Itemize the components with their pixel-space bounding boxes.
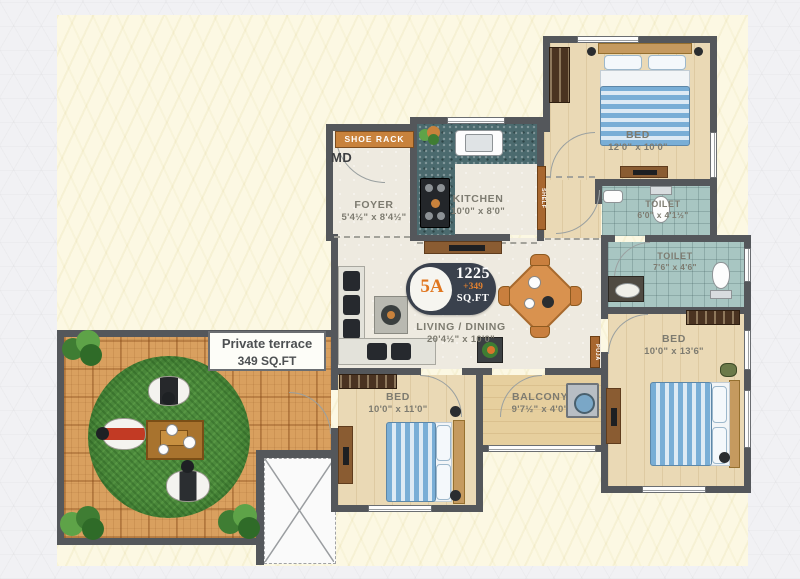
bed2-dresser bbox=[338, 426, 353, 484]
dining-chair-north bbox=[530, 254, 550, 266]
wall-foyer-left bbox=[326, 124, 333, 241]
unit-area-extra: +349 bbox=[452, 283, 494, 293]
kitchen-plant bbox=[419, 126, 441, 146]
bed2-wardrobe bbox=[339, 374, 397, 389]
void-duct-box bbox=[264, 458, 336, 564]
bed2-lamp-top bbox=[450, 406, 461, 417]
toilet2-label: TOILET 7'6" x 4'6" bbox=[632, 250, 718, 274]
living-label: LIVING / DINING 20'4½" x 10'0" bbox=[396, 320, 526, 347]
bed3-window-right-b bbox=[744, 390, 751, 448]
bed3-window-right-a bbox=[744, 330, 751, 370]
toilet1-dim: 6'0" x 4'1½" bbox=[622, 210, 704, 221]
wall-toilet1-right bbox=[710, 186, 717, 242]
bed2-name: BED bbox=[352, 390, 444, 404]
shoe-rack-label: SHOE RACK bbox=[344, 134, 404, 144]
toilet2-dim: 7'6" x 4'6" bbox=[632, 262, 718, 273]
living-name: LIVING / DINING bbox=[396, 320, 526, 334]
dining-chair-east bbox=[570, 286, 582, 306]
floorplan-canvas: Private terrace 349 SQ.FT bbox=[0, 0, 800, 579]
wall-bed2-left-a bbox=[331, 336, 338, 390]
sofa-vertical bbox=[338, 266, 365, 346]
terrace-bush-topleft bbox=[62, 330, 106, 368]
terrace-bush-bottomleft bbox=[60, 504, 108, 542]
wall-balcony-top-a bbox=[476, 368, 492, 375]
toilet1-wc-tank bbox=[650, 186, 672, 195]
bed1-pillow-left bbox=[604, 55, 642, 70]
bed1-name: BED bbox=[596, 128, 680, 142]
wall-living-left bbox=[331, 238, 338, 336]
terrace-person-top bbox=[146, 368, 192, 414]
unit-number: 5A bbox=[415, 276, 449, 298]
bed1-window-right bbox=[710, 132, 717, 178]
bed3-label: BED 10'0" x 13'6" bbox=[626, 332, 722, 359]
wall-balcony-top-b bbox=[545, 368, 608, 375]
toilet2-counter bbox=[608, 276, 644, 302]
wall-toilet2-left bbox=[601, 235, 608, 314]
bed1-label: BED 12'0" x 10'0" bbox=[596, 128, 680, 155]
dining-plate-3 bbox=[524, 298, 535, 309]
bed3-headboard bbox=[729, 380, 740, 468]
bed1-pillow-right bbox=[648, 55, 686, 70]
kitchen-shelf-tag: SHELF bbox=[537, 166, 546, 230]
bed1-lamp-left bbox=[587, 47, 596, 56]
toilet1-label: TOILET 6'0" x 4'1½" bbox=[622, 198, 704, 222]
tv-cabinet-living bbox=[424, 241, 502, 254]
unit-area-main: 1225 bbox=[452, 266, 494, 283]
kitchen-window bbox=[447, 117, 505, 124]
wall-balcony-bottom-a bbox=[476, 445, 488, 452]
toilet2-wc-tank bbox=[710, 290, 732, 299]
wall-bed2-right bbox=[476, 372, 483, 512]
terrace-plate-3 bbox=[158, 444, 169, 455]
kitchen-name: KITCHEN bbox=[432, 192, 524, 206]
bed1-window-top bbox=[577, 36, 639, 43]
puja-label: PUJA bbox=[594, 344, 600, 361]
unit-area-badge: 5A 1225 +349 SQ.FT bbox=[406, 263, 496, 315]
bed3-name: BED bbox=[626, 332, 722, 346]
kitchen-label: KITCHEN 10'0" x 8'0" bbox=[432, 192, 524, 219]
bed3-dresser bbox=[606, 388, 621, 444]
bed1-headboard bbox=[598, 43, 692, 54]
unit-area-suffix: SQ.FT bbox=[452, 293, 494, 304]
balcony-name: BALCONY bbox=[492, 390, 588, 404]
kitchen-dim: 10'0" x 8'0" bbox=[432, 206, 524, 219]
bed3-pillow-top bbox=[712, 386, 727, 423]
bed1-tv-cabinet bbox=[620, 166, 668, 178]
toilet1-sink bbox=[603, 190, 623, 203]
wall-foyer-top bbox=[326, 124, 418, 131]
terrace-label: Private terrace 349 SQ.FT bbox=[208, 331, 326, 371]
bed2-label: BED 10'0" x 11'0" bbox=[352, 390, 444, 417]
wall-bed2-left-b bbox=[331, 428, 338, 512]
bed1-lamp-right bbox=[694, 47, 703, 56]
dining-chair-south bbox=[530, 326, 550, 338]
bed2-window-bottom bbox=[368, 505, 432, 512]
bed3-blanket bbox=[650, 382, 712, 466]
dining-chair-west bbox=[498, 286, 510, 306]
bed3-window-bottom bbox=[642, 486, 706, 493]
toilet2-name: TOILET bbox=[632, 250, 718, 262]
wall-toilet2-top-b bbox=[645, 235, 751, 242]
balcony-railing bbox=[488, 445, 596, 452]
dining-plate-1 bbox=[528, 276, 541, 289]
foyer-name: FOYER bbox=[336, 198, 412, 212]
foyer-dim: 5'4½" x 8'4½" bbox=[336, 212, 412, 225]
toilet1-name: TOILET bbox=[622, 198, 704, 210]
bed3-wardrobe bbox=[686, 310, 740, 325]
void-x-mark bbox=[265, 459, 334, 562]
shelf-label: SHELF bbox=[540, 188, 546, 209]
terrace-plate-1 bbox=[166, 424, 178, 436]
dash-passage-living bbox=[545, 238, 599, 240]
bed2-blanket bbox=[386, 422, 436, 502]
dining-plate-2 bbox=[542, 296, 554, 308]
terrace-plate-2 bbox=[183, 436, 196, 449]
main-door-label: MD bbox=[331, 150, 352, 165]
bed3-dim: 10'0" x 13'6" bbox=[626, 346, 722, 359]
bed1-wardrobe bbox=[549, 47, 570, 103]
terrace-area: 349 SQ.FT bbox=[210, 353, 324, 370]
bed2-pillow-top bbox=[436, 425, 451, 461]
wall-bed1-bottom bbox=[595, 179, 717, 186]
kitchen-sink-basin bbox=[465, 134, 493, 152]
dash-foyer-living bbox=[334, 236, 410, 238]
bed2-pillow-bottom bbox=[436, 464, 451, 500]
bed2-dim: 10'0" x 11'0" bbox=[352, 404, 444, 417]
bed1-dim: 12'0" x 10'0" bbox=[596, 142, 680, 155]
bed3-lamp bbox=[719, 452, 730, 463]
toilet2-window bbox=[744, 248, 751, 282]
void-wall-top bbox=[256, 450, 336, 458]
living-dim: 20'4½" x 10'0" bbox=[396, 334, 526, 347]
foyer-label: FOYER 5'4½" x 8'4½" bbox=[336, 198, 412, 225]
wall-bed3-left-a bbox=[601, 307, 608, 319]
terrace-title: Private terrace bbox=[210, 335, 324, 353]
puja-tag: PUJA bbox=[590, 336, 600, 368]
bed3-slippers bbox=[720, 363, 737, 377]
terrace-bush-bottomright bbox=[218, 504, 264, 542]
terrace-person-left bbox=[96, 414, 148, 454]
balcony-dim: 9'7½" x 4'0" bbox=[492, 404, 588, 417]
wall-balcony-bottom-b bbox=[596, 445, 608, 452]
shoe-rack: SHOE RACK bbox=[335, 131, 414, 148]
balcony-label: BALCONY 9'7½" x 4'0" bbox=[492, 390, 588, 417]
wall-kitchen-bottom bbox=[410, 234, 510, 241]
bed2-lamp-bottom bbox=[450, 490, 461, 501]
terrace-person-bottom bbox=[164, 458, 212, 506]
